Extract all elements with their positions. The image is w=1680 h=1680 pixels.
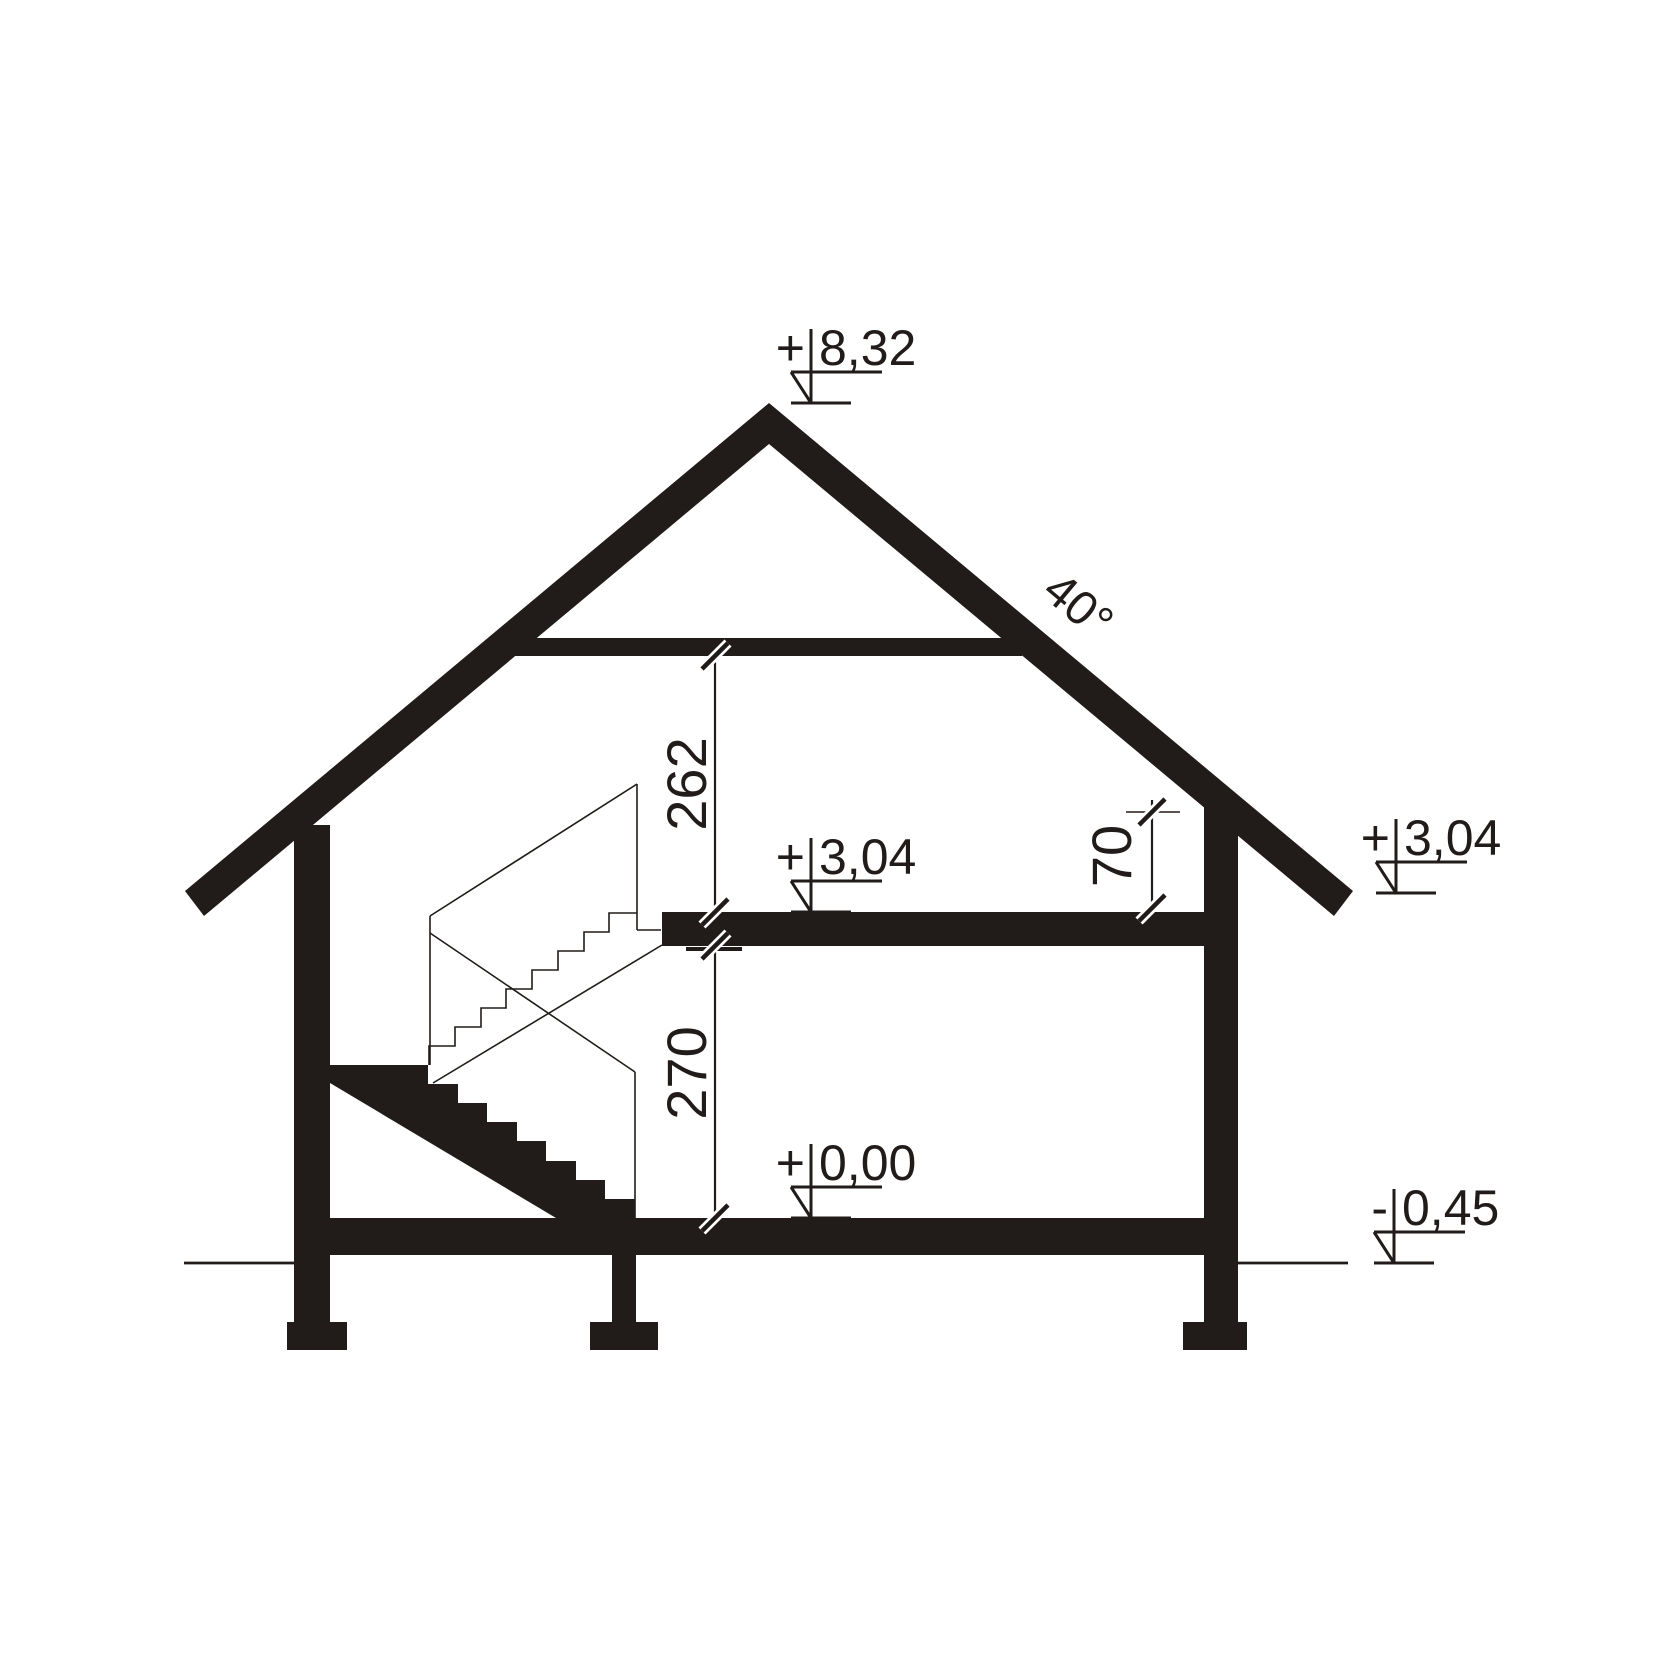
- upper-floor-slab: [662, 912, 1238, 946]
- dimension-attic-height: 262: [655, 642, 728, 925]
- level-sign-upper-floor: +: [776, 829, 805, 885]
- footing-mid: [590, 1322, 658, 1350]
- level-sign-ground-floor: +: [776, 1135, 805, 1191]
- marker-hypotenuse: [1374, 1232, 1394, 1263]
- roof-slope-left: [185, 403, 769, 916]
- dim-label-ground-height: 270: [655, 1026, 718, 1119]
- level-marker-upper-floor: + 3,04: [776, 829, 917, 912]
- level-marker-ground-floor: + 0,00: [776, 1135, 917, 1218]
- marker-hypotenuse: [791, 1187, 811, 1218]
- level-value-terrain: 0,45: [1402, 1180, 1499, 1236]
- dim-label-attic-height: 262: [655, 737, 718, 830]
- level-value-ground-floor: 0,00: [819, 1135, 916, 1191]
- level-marker-ridge: + 8,32: [776, 320, 917, 403]
- ground-floor-slab: [312, 1218, 1222, 1255]
- level-sign-right-eave: +: [1361, 810, 1390, 866]
- footing-right: [1183, 1322, 1247, 1350]
- level-marker-terrain: - 0,45: [1371, 1180, 1499, 1263]
- marker-hypotenuse: [1376, 862, 1396, 893]
- level-marker-right-eave: + 3,04: [1361, 810, 1502, 893]
- marker-hypotenuse: [791, 881, 811, 912]
- foundation-wall-mid: [612, 1240, 636, 1322]
- collar-beam: [515, 638, 1022, 656]
- level-value-ridge: 8,32: [819, 320, 916, 376]
- dimension-ground-height: 270: [655, 933, 742, 1231]
- footing-left: [287, 1322, 347, 1350]
- level-value-upper-floor: 3,04: [819, 829, 916, 885]
- level-sign-terrain: -: [1371, 1180, 1388, 1236]
- stair-upper-steps-outline: [429, 913, 637, 1065]
- dimension-knee-wall: 70: [1080, 799, 1180, 921]
- dim-label-knee-wall: 70: [1080, 825, 1143, 887]
- stair-lower-flight: [323, 1065, 635, 1218]
- stair-handrail: [430, 784, 637, 916]
- building-section-solids: [185, 403, 1353, 1350]
- stair-soffit-line: [433, 945, 662, 1083]
- stair-projection-diagonal: [430, 933, 635, 1072]
- level-sign-ridge: +: [776, 320, 805, 376]
- architectural-section-page: 262 270: [0, 0, 1680, 1680]
- section-drawing-canvas: 262 270: [0, 0, 1680, 1680]
- marker-hypotenuse: [791, 372, 811, 403]
- level-value-right-eave: 3,04: [1404, 810, 1501, 866]
